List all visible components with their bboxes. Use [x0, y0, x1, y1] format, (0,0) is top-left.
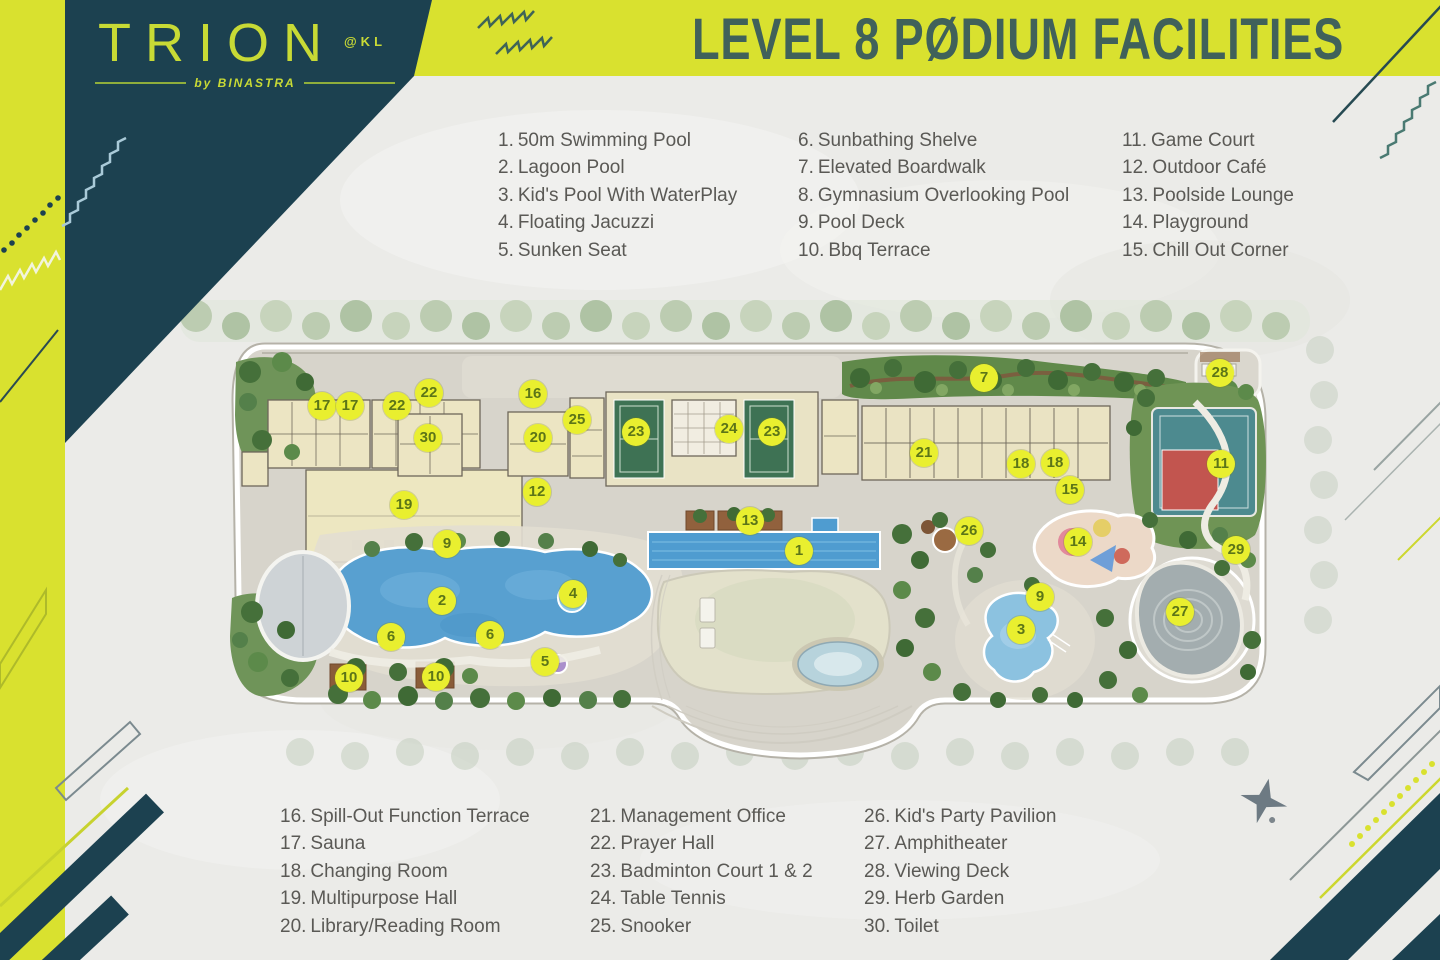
map-marker-17: 17	[308, 392, 336, 420]
map-marker-14: 14	[1064, 528, 1092, 556]
map-marker-12: 12	[523, 478, 551, 506]
map-marker-20: 20	[524, 424, 552, 452]
map-marker-18: 18	[1041, 449, 1069, 477]
map-marker-23: 23	[622, 418, 650, 446]
map-marker-9: 9	[433, 530, 461, 558]
map-marker-7: 7	[970, 364, 998, 392]
map-marker-10: 10	[335, 664, 363, 692]
poster: TRION @KL by BINASTRA LEVEL 8 PØDIUM FAC…	[0, 0, 1440, 960]
map-marker-13: 13	[736, 507, 764, 535]
map-marker-layer: 1717222230191625201223242372821181815111…	[0, 0, 1440, 960]
map-marker-28: 28	[1206, 359, 1234, 387]
map-marker-17: 17	[336, 392, 364, 420]
map-marker-6: 6	[377, 623, 405, 651]
map-marker-1: 1	[785, 537, 813, 565]
map-marker-10: 10	[422, 663, 450, 691]
map-marker-26: 26	[955, 517, 983, 545]
map-marker-11: 11	[1207, 450, 1235, 478]
map-marker-6: 6	[476, 621, 504, 649]
map-marker-18: 18	[1007, 450, 1035, 478]
map-marker-16: 16	[519, 380, 547, 408]
map-marker-24: 24	[715, 415, 743, 443]
map-marker-9: 9	[1026, 583, 1054, 611]
map-marker-22: 22	[383, 392, 411, 420]
map-marker-5: 5	[531, 648, 559, 676]
map-marker-3: 3	[1007, 616, 1035, 644]
map-marker-30: 30	[414, 424, 442, 452]
map-marker-22: 22	[415, 379, 443, 407]
map-marker-29: 29	[1222, 536, 1250, 564]
map-marker-27: 27	[1166, 598, 1194, 626]
map-marker-4: 4	[559, 580, 587, 608]
map-marker-2: 2	[428, 587, 456, 615]
map-marker-21: 21	[910, 439, 938, 467]
map-marker-19: 19	[390, 491, 418, 519]
map-marker-15: 15	[1056, 476, 1084, 504]
map-marker-25: 25	[563, 406, 591, 434]
map-marker-23: 23	[758, 418, 786, 446]
